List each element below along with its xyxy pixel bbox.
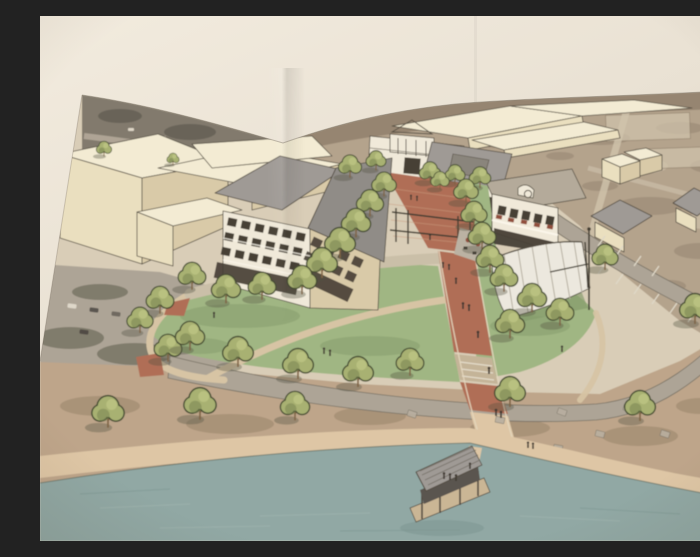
rendering-photo-svg bbox=[40, 16, 700, 541]
photo-of-rendering bbox=[40, 16, 700, 541]
photo-vignette bbox=[40, 16, 700, 541]
